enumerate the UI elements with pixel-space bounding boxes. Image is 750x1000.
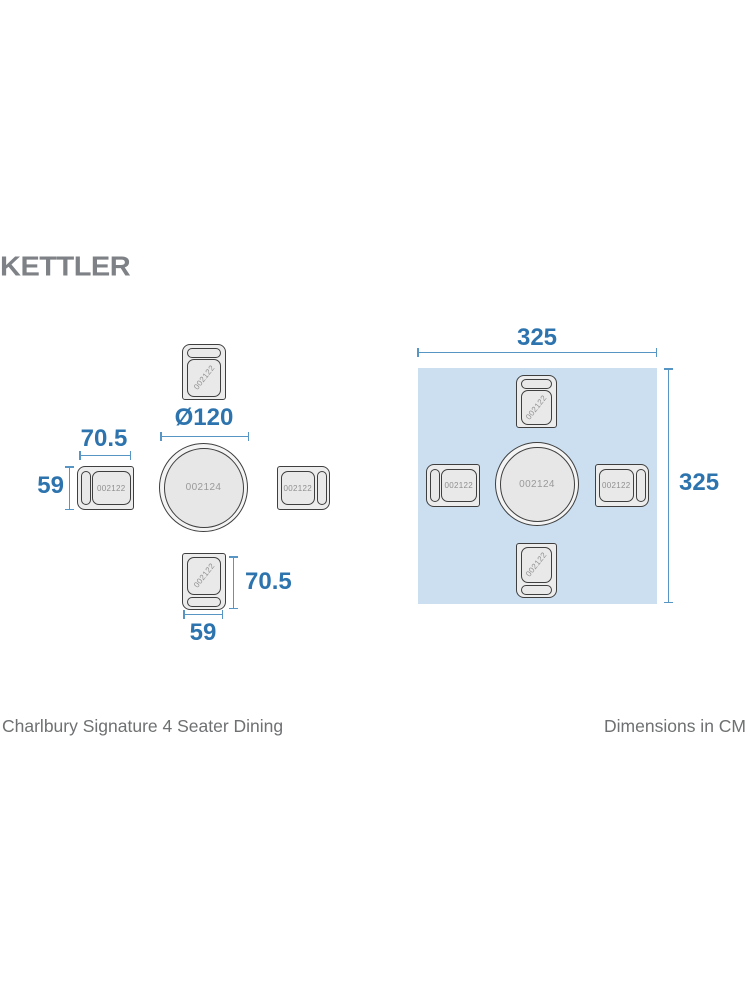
chair-seat: 002122 <box>92 471 131 505</box>
chair-code-label: 002122 <box>97 484 126 493</box>
chair-code-label: 002122 <box>445 481 474 490</box>
chair-seat: 002122 <box>441 469 477 502</box>
chair-right: 002122 <box>277 466 330 510</box>
dining-table: 002124 <box>159 443 248 532</box>
chair-backrest <box>636 469 646 502</box>
chair-width-label-bottom: 59 <box>163 621 243 645</box>
chair-code-label: 002122 <box>524 393 549 421</box>
chair-left: 002122 <box>426 464 480 507</box>
chair-width-line-bottom <box>183 614 223 615</box>
chair-bottom: 002122 <box>182 553 226 610</box>
kettler-logo: KETTLER <box>0 251 130 283</box>
table-code-label: 002124 <box>519 479 555 490</box>
footprint-width-line <box>417 352 657 353</box>
footprint-width-label: 325 <box>487 326 587 350</box>
chair-backrest <box>317 471 327 505</box>
chair-seat: 002122 <box>187 557 221 596</box>
chair-seat: 002122 <box>187 359 221 397</box>
chair-backrest <box>187 348 221 358</box>
chair-depth-label-bottom: 70.5 <box>245 570 325 594</box>
chair-code-label: 002122 <box>602 481 631 490</box>
chair-code-label: 002122 <box>524 551 549 579</box>
chair-backrest <box>187 597 221 607</box>
chair-top: 002122 <box>182 344 226 400</box>
chair-right: 002122 <box>595 464 649 507</box>
chair-code-label: 002122 <box>192 562 217 590</box>
chair-backrest <box>521 379 552 389</box>
product-name: Charlbury Signature 4 Seater Dining <box>2 716 283 737</box>
chair-seat: 002122 <box>281 471 316 505</box>
table-code-label: 002124 <box>186 482 222 493</box>
chair-seat: 002122 <box>521 390 552 425</box>
chair-top: 002122 <box>516 375 557 428</box>
table-top: 002124 <box>500 447 575 522</box>
dimension-sheet: KETTLER 002122 Ø120 002124 70.5 59 00212… <box>0 0 750 1000</box>
chair-code-label: 002122 <box>192 364 217 392</box>
units-note: Dimensions in CM <box>604 716 746 737</box>
table-diameter-line <box>160 436 249 437</box>
chair-depth-line-bottom <box>233 556 234 609</box>
chair-code-label: 002122 <box>284 484 313 493</box>
chair-width-line <box>69 466 70 510</box>
chair-width-label: 59 <box>14 474 64 498</box>
chair-seat: 002122 <box>521 547 552 584</box>
chair-left: 002122 <box>77 466 134 510</box>
chair-depth-line <box>79 455 131 456</box>
table-diameter-label: Ø120 <box>154 406 254 430</box>
footprint-height-label: 325 <box>679 471 750 495</box>
chair-backrest <box>521 585 552 595</box>
dining-table: 002124 <box>495 442 579 526</box>
chair-bottom: 002122 <box>516 543 557 598</box>
footprint-height-line <box>668 368 669 603</box>
chair-seat: 002122 <box>599 469 635 502</box>
chair-backrest <box>430 469 440 502</box>
chair-depth-label: 70.5 <box>64 427 144 451</box>
table-top: 002124 <box>164 448 244 528</box>
chair-backrest <box>81 471 91 505</box>
